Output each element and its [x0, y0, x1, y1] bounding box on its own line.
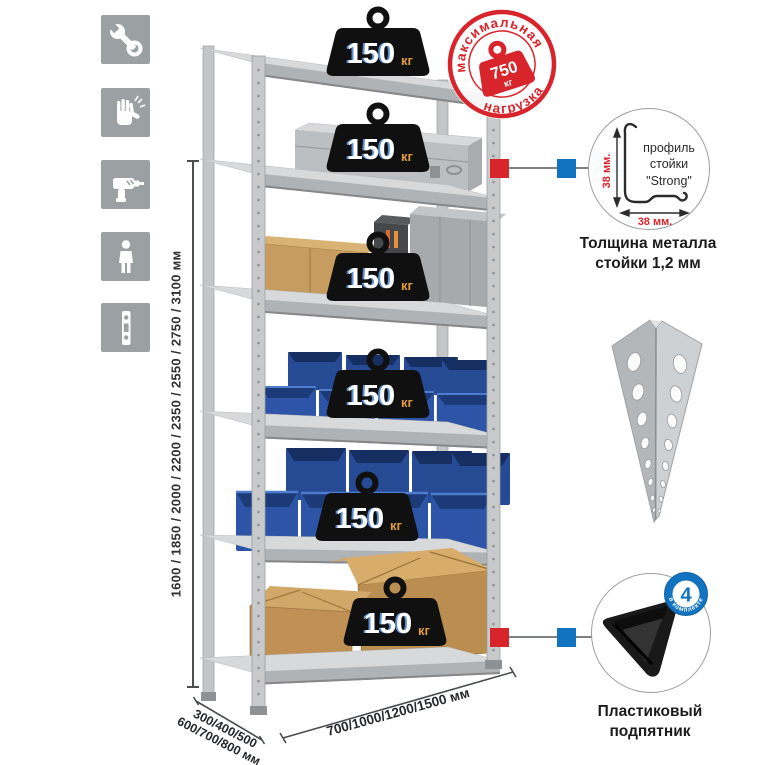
svg-text:кг: кг — [418, 623, 431, 638]
svg-text:150: 150 — [347, 380, 395, 412]
svg-text:"Strong": "Strong" — [646, 174, 692, 188]
svg-text:кг: кг — [401, 149, 414, 164]
bottom-callout-line — [500, 636, 595, 638]
angle-post-image — [598, 306, 718, 541]
bottom-blue-marker — [557, 628, 576, 647]
svg-text:кг: кг — [390, 518, 403, 533]
top-callout-line — [500, 167, 594, 169]
svg-text:кг: кг — [401, 53, 414, 68]
foot-caption: Пластиковый подпятник — [545, 702, 755, 742]
weight-150kg-badge: 150 150 кг — [313, 348, 443, 423]
svg-text:150: 150 — [336, 503, 384, 535]
svg-text:профиль: профиль — [643, 141, 695, 155]
weight-150kg-badge: 150 150 кг — [313, 231, 443, 306]
svg-text:кг: кг — [401, 395, 414, 410]
product-infographic: 1600 / 1850 / 2000 / 2200 / 2350 / 2550 … — [0, 0, 765, 765]
svg-text:150: 150 — [364, 608, 412, 640]
svg-text:стойки: стойки — [650, 157, 688, 171]
profile-dim-horizontal: 38 мм. — [638, 216, 673, 228]
svg-text:150: 150 — [347, 263, 395, 295]
profile-caption: Толщина металла стойки 1,2 мм — [538, 234, 758, 274]
bottom-red-marker — [490, 628, 509, 647]
svg-text:150: 150 — [347, 38, 395, 70]
count-badge: 4 в комплекте — [663, 571, 709, 617]
weight-150kg-badge: 150 150 кг — [313, 102, 443, 177]
top-red-marker — [490, 159, 509, 178]
profile-cross-section: 38 мм. 38 мм. профиль стойки "Strong" — [589, 109, 709, 229]
profile-detail-circle: 38 мм. 38 мм. профиль стойки "Strong" — [588, 108, 710, 230]
max-load-stamp: максимальная нагрузка 750 кг — [432, 0, 572, 134]
profile-dim-vertical: 38 мм. — [601, 154, 613, 189]
svg-text:кг: кг — [401, 278, 414, 293]
weight-150kg-badge: 150 150 кг — [330, 576, 460, 651]
badge-count: 4 — [680, 585, 692, 607]
top-blue-marker — [557, 159, 576, 178]
weight-150kg-badge: 150 150 кг — [302, 471, 432, 546]
svg-text:150: 150 — [347, 134, 395, 166]
weight-150kg-badge: 150 150 кг — [313, 6, 443, 81]
